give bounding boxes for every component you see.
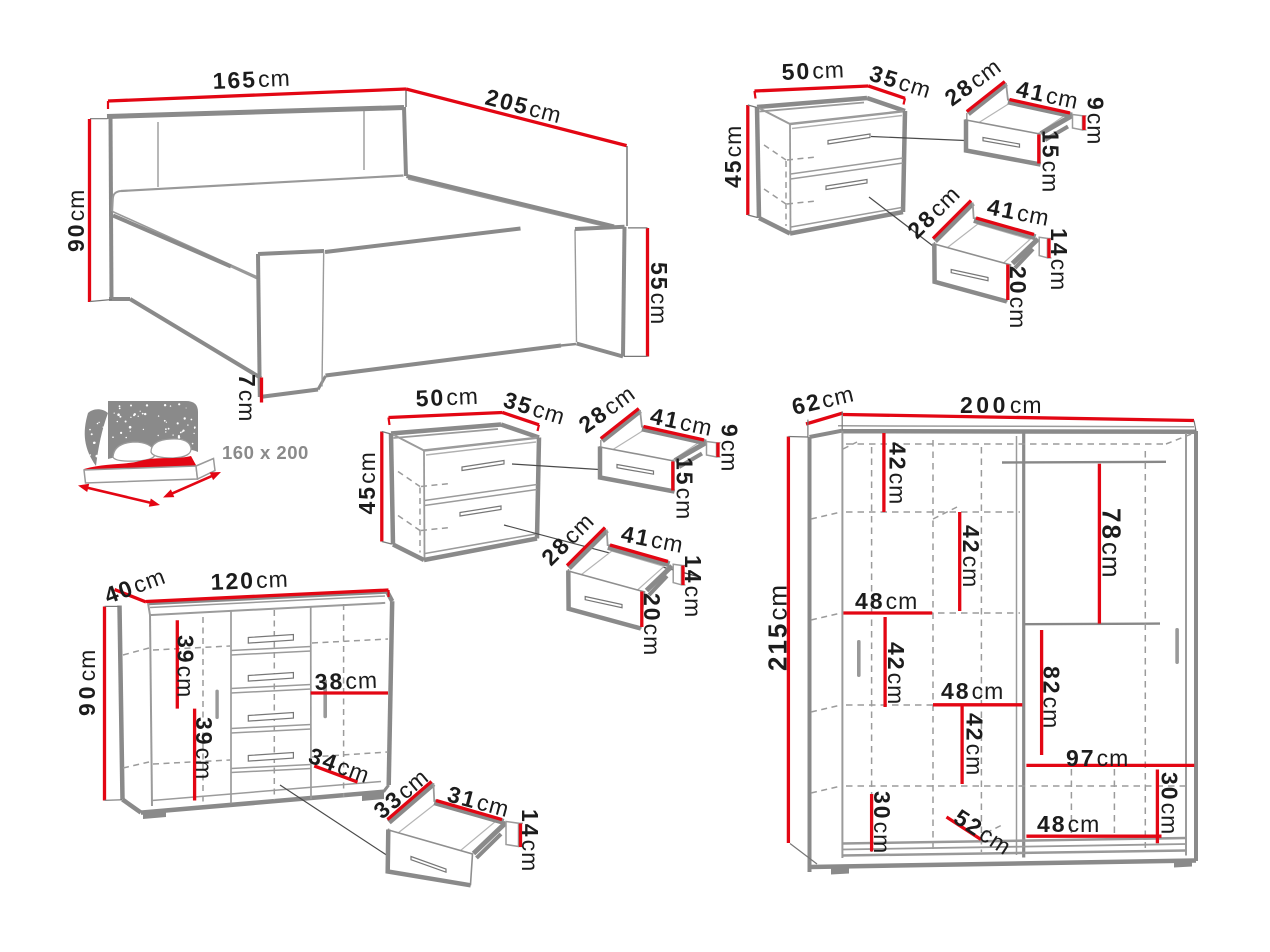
svg-text:45cm: 45cm [720, 125, 746, 188]
svg-text:42cm: 42cm [885, 442, 911, 505]
svg-text:90cm: 90cm [63, 189, 89, 252]
svg-text:39cm: 39cm [173, 635, 199, 698]
svg-text:165cm: 165cm [212, 65, 291, 94]
svg-text:45cm: 45cm [354, 451, 380, 514]
svg-text:200cm: 200cm [960, 392, 1043, 418]
svg-text:14cm: 14cm [1046, 228, 1072, 291]
svg-text:120cm: 120cm [210, 566, 289, 595]
svg-text:90cm: 90cm [74, 649, 100, 716]
svg-text:39cm: 39cm [191, 717, 217, 780]
svg-text:42cm: 42cm [962, 713, 988, 776]
svg-text:82cm: 82cm [1039, 666, 1065, 729]
svg-text:42cm: 42cm [958, 525, 984, 588]
svg-text:7cm: 7cm [234, 374, 260, 422]
svg-text:9cm: 9cm [1083, 97, 1109, 145]
svg-text:30cm: 30cm [869, 791, 895, 854]
svg-text:30cm: 30cm [1157, 772, 1183, 835]
svg-text:15cm: 15cm [672, 457, 698, 520]
svg-text:48cm: 48cm [941, 678, 1004, 704]
svg-text:20cm: 20cm [639, 593, 665, 656]
svg-text:48cm: 48cm [1037, 811, 1100, 837]
svg-text:20cm: 20cm [1005, 266, 1031, 329]
svg-text:97cm: 97cm [1066, 745, 1129, 771]
svg-text:55cm: 55cm [646, 262, 672, 325]
svg-text:215cm: 215cm [763, 584, 793, 671]
svg-text:14cm: 14cm [680, 555, 706, 618]
svg-text:48cm: 48cm [855, 588, 918, 614]
svg-text:9cm: 9cm [717, 424, 743, 472]
svg-text:78cm: 78cm [1097, 508, 1127, 579]
svg-text:38cm: 38cm [314, 667, 378, 695]
svg-text:160 x 200: 160 x 200 [222, 442, 309, 463]
svg-text:42cm: 42cm [883, 642, 909, 705]
svg-text:50cm: 50cm [415, 383, 479, 412]
svg-text:14cm: 14cm [517, 809, 543, 872]
svg-text:15cm: 15cm [1038, 130, 1064, 193]
svg-text:50cm: 50cm [781, 56, 845, 85]
